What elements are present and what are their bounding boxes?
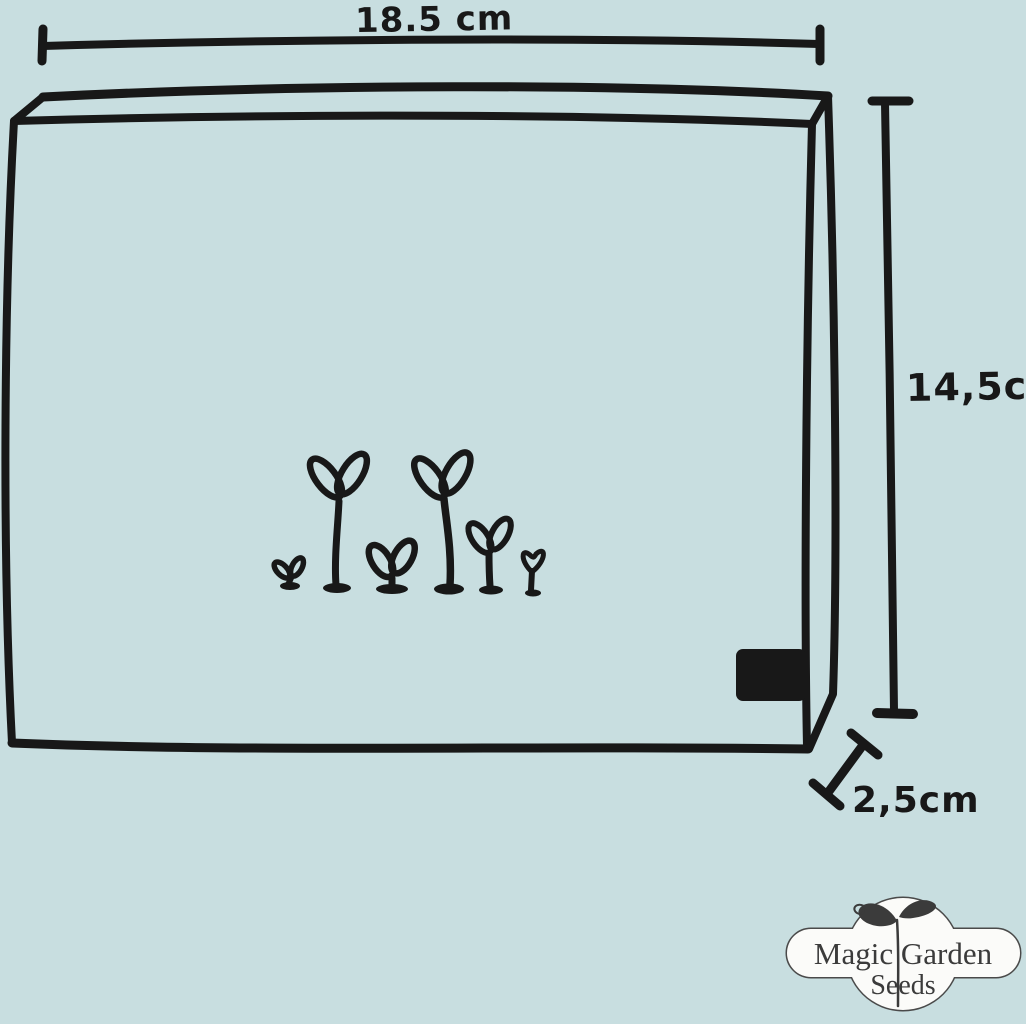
box-side-tab (736, 649, 806, 701)
depth-dimension: 2,5cm (813, 733, 980, 821)
height-dimension: 14,5cm (872, 101, 1026, 714)
seedling-leaf-right-icon (485, 515, 515, 552)
seedling-icon (523, 551, 543, 596)
logo-subtitle: Seeds (870, 970, 935, 1001)
seedling-leaf-right-icon (386, 537, 419, 577)
seedling-icon (464, 515, 515, 594)
height-dim-cap-bottom (877, 713, 913, 714)
seedling-icon (364, 537, 420, 594)
seedling-stem (335, 501, 339, 585)
depth-dim-label: 2,5cm (852, 780, 980, 821)
box-back-top-edge (43, 87, 828, 97)
magic-garden-seeds-logo: Magic Garden Seeds (787, 898, 1020, 1010)
seedling-leaf-right-icon (436, 448, 476, 498)
width-dimension: 18.5 cm (42, 0, 820, 61)
seedling-stem (444, 499, 450, 585)
seedling-icon (304, 449, 372, 593)
product-dimension-sketch: 18.5 cm (0, 0, 1026, 1024)
seedling-icon (271, 556, 306, 590)
width-dim-label: 18.5 cm (355, 0, 514, 41)
seedlings-drawing (271, 448, 543, 596)
seedling-leaf-heart-icon (523, 551, 543, 572)
seed-box-drawing (5, 87, 835, 749)
box-left-edge (5, 121, 14, 743)
box-front-top-edge (14, 116, 812, 124)
height-dim-line (885, 103, 894, 711)
seedling-leaf-right-icon (288, 556, 306, 578)
seedling-leaf-right-icon (331, 449, 372, 499)
seed-box-dimension-diagram: 18.5 cm (0, 0, 1026, 1024)
width-dim-line (43, 40, 819, 46)
logo-title: Magic Garden (814, 936, 993, 971)
box-bottom-edge (12, 743, 808, 749)
seedling-icon (408, 448, 476, 594)
height-dim-label: 14,5cm (906, 363, 1026, 410)
box-front-right-edge (806, 124, 812, 746)
seedling-stem (489, 553, 490, 586)
